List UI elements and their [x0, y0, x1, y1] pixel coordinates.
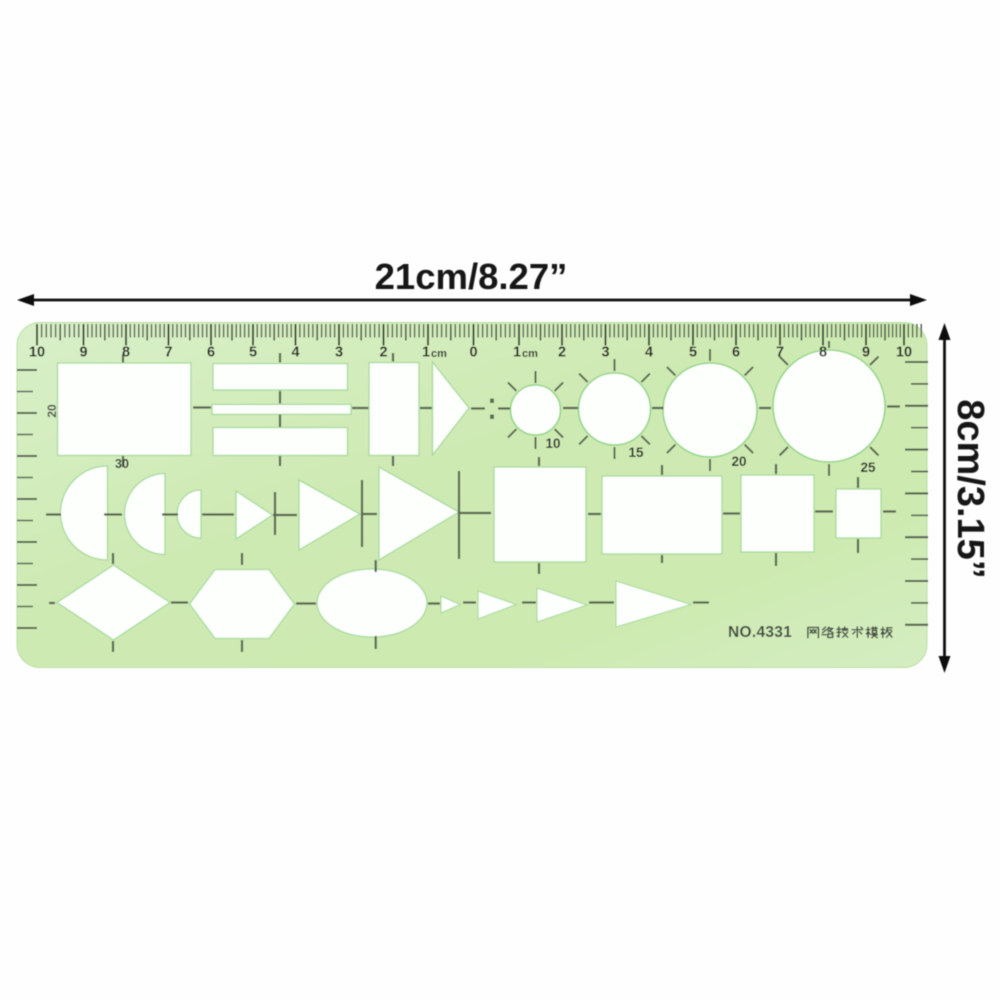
svg-text:5: 5 [689, 345, 697, 361]
svg-text:20: 20 [731, 454, 746, 469]
svg-text:15: 15 [628, 445, 644, 460]
svg-text:2: 2 [558, 345, 566, 361]
svg-text:9: 9 [862, 345, 870, 361]
svg-text:7: 7 [164, 345, 172, 361]
svg-text:30: 30 [115, 457, 129, 471]
svg-text:10: 10 [545, 436, 560, 451]
svg-text:21cm/8.27”: 21cm/8.27” [375, 256, 568, 297]
svg-text:10: 10 [896, 345, 912, 361]
svg-text:8cm/3.15”: 8cm/3.15” [949, 399, 991, 579]
svg-text:6: 6 [732, 345, 740, 361]
svg-text:2: 2 [379, 345, 387, 361]
svg-text:25: 25 [860, 460, 876, 475]
svg-text:8: 8 [122, 345, 130, 361]
svg-text:10: 10 [29, 345, 45, 361]
svg-text:7: 7 [776, 345, 784, 361]
svg-text:cm: cm [431, 348, 447, 360]
svg-text:cm: cm [522, 348, 538, 360]
svg-text:5: 5 [249, 345, 257, 361]
svg-text:NO.4331: NO.4331 [728, 624, 792, 641]
svg-text:1: 1 [513, 345, 521, 361]
svg-text:6: 6 [207, 345, 215, 361]
svg-text:9: 9 [79, 345, 87, 361]
svg-text:8: 8 [819, 345, 827, 361]
svg-text:0: 0 [469, 345, 477, 361]
svg-text:20: 20 [45, 404, 59, 418]
svg-text:4: 4 [291, 345, 299, 361]
svg-text:1: 1 [422, 345, 430, 361]
svg-text:3: 3 [335, 345, 343, 361]
svg-text:4: 4 [645, 345, 653, 361]
svg-text:3: 3 [601, 345, 609, 361]
